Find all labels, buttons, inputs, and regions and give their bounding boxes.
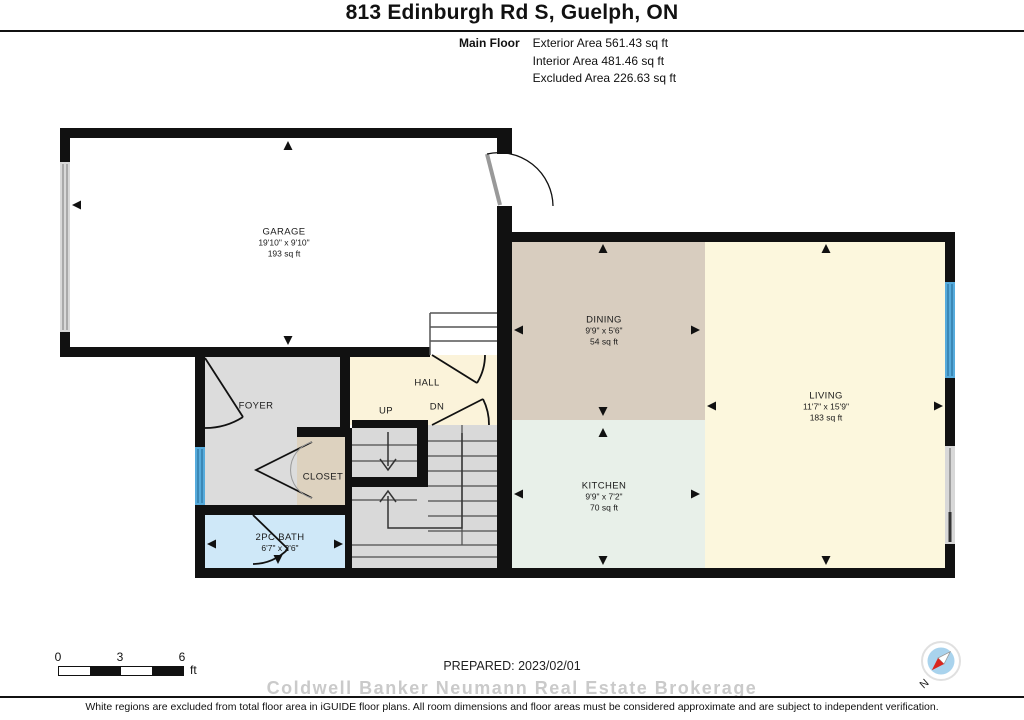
bath-name: 2PC BATH bbox=[256, 532, 305, 543]
scale-ticks: 0 3 6 bbox=[58, 650, 198, 664]
hall-label: HALL bbox=[414, 378, 439, 389]
stairs-up-label: UP bbox=[379, 406, 393, 417]
living-dims: 11'7" x 15'9" bbox=[803, 402, 849, 413]
scale-bar: 0 3 6 ft bbox=[58, 650, 198, 676]
garage-label: GARAGE 19'10" x 9'10" 193 sq ft bbox=[258, 227, 309, 260]
foyer-label: FOYER bbox=[239, 401, 274, 412]
kitchen-label: KITCHEN 9'9" x 7'2" 70 sq ft bbox=[582, 481, 627, 514]
scale-bar-segments bbox=[58, 666, 184, 676]
garage-door-panel bbox=[60, 162, 70, 332]
garage-name: GARAGE bbox=[258, 227, 309, 238]
garage-dims: 19'10" x 9'10" bbox=[258, 238, 309, 249]
scale-tick-0: 0 bbox=[55, 650, 62, 664]
floorplan-page: 813 Edinburgh Rd S, Guelph, ON Main Floo… bbox=[0, 0, 1024, 720]
bath-label: 2PC BATH 6'7" x 2'6" bbox=[256, 532, 305, 554]
living-area: 183 sq ft bbox=[803, 413, 849, 424]
kitchen-name: KITCHEN bbox=[582, 481, 627, 492]
floor-plan-canvas: N bbox=[0, 0, 1024, 720]
dining-name: DINING bbox=[585, 315, 622, 326]
disclaimer-text: White regions are excluded from total fl… bbox=[0, 701, 1024, 713]
compass: N bbox=[918, 642, 960, 691]
scale-tick-6: 6 bbox=[179, 650, 186, 664]
bath-dims: 6'7" x 2'6" bbox=[256, 543, 305, 554]
living-name: LIVING bbox=[803, 391, 849, 402]
scale-unit: ft bbox=[190, 663, 197, 677]
living-label: LIVING 11'7" x 15'9" 183 sq ft bbox=[803, 391, 849, 424]
foyer-window bbox=[195, 447, 205, 505]
dining-area: 54 sq ft bbox=[585, 337, 622, 348]
dining-label: DINING 9'9" x 5'6" 54 sq ft bbox=[585, 315, 622, 348]
garage-area: 193 sq ft bbox=[258, 249, 309, 260]
closet-label: CLOSET bbox=[303, 472, 343, 483]
footer-rule bbox=[0, 696, 1024, 698]
living-window bbox=[945, 282, 955, 378]
prepared-date: PREPARED: 2023/02/01 bbox=[443, 659, 580, 673]
compass-north-label: N bbox=[918, 677, 932, 691]
stairs-down-label: DN bbox=[430, 402, 445, 413]
dining-dims: 9'9" x 5'6" bbox=[585, 326, 622, 337]
scale-tick-3: 3 bbox=[117, 650, 124, 664]
kitchen-area: 70 sq ft bbox=[582, 503, 627, 514]
kitchen-dims: 9'9" x 7'2" bbox=[582, 492, 627, 503]
